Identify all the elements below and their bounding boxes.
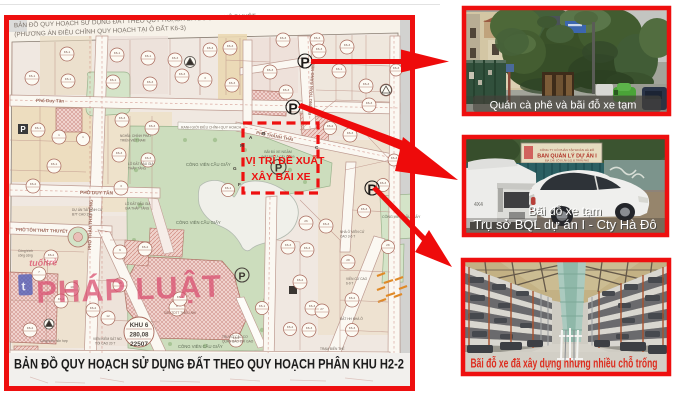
- svg-text:6-9 T: 6-9 T: [346, 282, 353, 286]
- svg-text:K6-3: K6-3: [391, 156, 398, 160]
- svg-text:12: 12: [106, 314, 110, 318]
- svg-text:BẢN ĐỒ QUY HOẠCH SỬ DỤNG ĐẤT T: BẢN ĐỒ QUY HOẠCH SỬ DỤNG ĐẤT THEO QUY HO…: [14, 355, 404, 372]
- svg-text:7: 7: [38, 270, 40, 274]
- svg-text:K6-3: K6-3: [116, 151, 123, 155]
- svg-text:280,08: 280,08: [130, 332, 149, 339]
- svg-text:XÂY BÃI XE: XÂY BÃI XE: [251, 170, 310, 183]
- svg-text:K6-3: K6-3: [149, 124, 156, 128]
- svg-text:28: 28: [346, 258, 350, 262]
- svg-text:K6-3: K6-3: [347, 131, 354, 135]
- svg-text:K6-3: K6-3: [145, 156, 152, 160]
- svg-text:M: M: [240, 143, 244, 148]
- svg-text:G: G: [233, 166, 237, 171]
- svg-text:P: P: [20, 125, 26, 134]
- svg-text:P: P: [288, 100, 297, 116]
- svg-text:K6-1: K6-1: [336, 67, 343, 71]
- svg-text:K6-1: K6-1: [35, 126, 42, 130]
- svg-text:DỰ ÁN TÁI ĐỊNH CƯ: DỰ ÁN TÁI ĐỊNH CƯ: [72, 208, 103, 212]
- svg-text:K6-1: K6-1: [64, 50, 71, 54]
- svg-text:TRIỂN VIỆT NAM: TRIỂN VIỆT NAM: [120, 138, 146, 143]
- svg-text:K6-3: K6-3: [380, 181, 387, 185]
- svg-text:6: 6: [119, 248, 121, 252]
- svg-text:K6-3: K6-3: [285, 243, 292, 247]
- svg-text:TRẠM BIẾN THẾ: TRẠM BIẾN THẾ: [320, 346, 345, 351]
- svg-text:ĐẤT HH NHÀ Ở: ĐẤT HH NHÀ Ở: [340, 316, 363, 321]
- svg-text:K6-2: K6-2: [349, 296, 356, 300]
- svg-text:Quán cà phê và bãi đỗ xe tạm: Quán cà phê và bãi đỗ xe tạm: [490, 99, 637, 112]
- svg-text:K6-3: K6-3: [267, 68, 274, 72]
- svg-text:LÔ ĐẤT ĐẤU GIÁ: LÔ ĐẤT ĐẤU GIÁ: [128, 161, 154, 166]
- svg-text:SÂN TDTT THIẾU NHI: SÂN TDTT THIẾU NHI: [164, 310, 196, 315]
- svg-text:K6-2: K6-2: [297, 278, 304, 282]
- svg-text:K6-3: K6-3: [119, 116, 126, 120]
- svg-text:3: 3: [204, 76, 206, 80]
- svg-text:K6-3: K6-3: [227, 44, 234, 48]
- svg-text:1: 1: [82, 135, 84, 139]
- svg-text:K6-2: K6-2: [287, 325, 294, 329]
- svg-text:K6-3: K6-3: [366, 101, 373, 105]
- svg-text:K6-1: K6-1: [110, 78, 117, 82]
- svg-text:22507: 22507: [130, 341, 148, 348]
- svg-text:K6-3: K6-3: [349, 326, 356, 330]
- svg-text:NHÀ Ở VIÊN CỨ: NHÀ Ở VIÊN CỨ: [340, 229, 365, 234]
- svg-text:K6-1: K6-1: [114, 51, 121, 55]
- svg-text:K6-1: K6-1: [145, 54, 152, 58]
- svg-text:K6-1: K6-1: [225, 186, 232, 190]
- svg-text:K6-1: K6-1: [51, 162, 58, 166]
- svg-text:K6-1: K6-1: [259, 304, 266, 308]
- svg-text:K6-3: K6-3: [344, 43, 351, 47]
- svg-text:26: 26: [304, 219, 308, 223]
- svg-text:K6-3: K6-3: [314, 36, 321, 40]
- svg-text:P: P: [238, 271, 245, 283]
- svg-text:Bãi đỗ xe tạm: Bãi đỗ xe tạm: [528, 203, 601, 218]
- svg-text:B7T CAO 15T: B7T CAO 15T: [72, 213, 92, 217]
- svg-text:t: t: [21, 279, 25, 293]
- svg-text:K6-3: K6-3: [316, 47, 323, 51]
- svg-text:CÔNG VIÊN CẦU GIẤY: CÔNG VIÊN CẦU GIẤY: [176, 220, 221, 225]
- svg-text:K6-3: K6-3: [323, 222, 330, 226]
- svg-text:K6-2: K6-2: [327, 124, 334, 128]
- svg-text:CAO 3-6 T: CAO 3-6 T: [340, 235, 355, 239]
- svg-text:K6-3: K6-3: [393, 66, 400, 70]
- svg-text:K6-2: K6-2: [142, 245, 149, 249]
- svg-text:KHU 6: KHU 6: [130, 322, 149, 329]
- svg-text:BÃI Đỗ XE NGẦM: BÃI Đỗ XE NGẦM: [264, 149, 291, 154]
- svg-text:K6-3: K6-3: [283, 88, 290, 92]
- svg-text:TỐI CAO 20 T: TỐI CAO 20 T: [95, 341, 115, 346]
- svg-text:RANH GIỚI ĐIỀU CHỈNH QUY HOẠCH: RANH GIỚI ĐIỀU CHỈNH QUY HOẠCH: [181, 125, 242, 130]
- svg-text:K6-1: K6-1: [29, 74, 36, 78]
- svg-text:CÔNG TY CỔ PHẦN TẬP ĐOÀN HÀ ĐÔ: CÔNG TY CỔ PHẦN TẬP ĐOÀN HÀ ĐÔ: [540, 147, 595, 152]
- svg-text:K6-1: K6-1: [65, 77, 72, 81]
- svg-text:3: 3: [120, 184, 122, 188]
- svg-text:PHÁP LUẬT: PHÁP LUẬT: [36, 267, 223, 309]
- svg-text:VIỆN KIỂM SÁT ND: VIỆN KIỂM SÁT ND: [93, 336, 122, 341]
- svg-text:công cộng: công cộng: [18, 254, 33, 258]
- svg-text:K6-3: K6-3: [304, 246, 311, 250]
- svg-text:K6-3: K6-3: [207, 46, 214, 50]
- svg-text:Công trình hỗn hợp: Công trình hỗn hợp: [40, 338, 68, 343]
- svg-text:K6-3: K6-3: [172, 56, 179, 60]
- svg-text:K6-3: K6-3: [361, 207, 368, 211]
- svg-text:GIA THẤP TẦNG: GIA THẤP TẦNG: [125, 207, 150, 211]
- svg-text:27: 27: [320, 307, 324, 311]
- svg-text:VIỄN CƯ CAO: VIỄN CƯ CAO: [346, 276, 368, 281]
- svg-text:K6-3: K6-3: [280, 36, 287, 40]
- svg-text:NGHĨA: CHÍNH PHÁT: NGHĨA: CHÍNH PHÁT: [120, 133, 151, 138]
- svg-text:K6-2: K6-2: [30, 182, 37, 186]
- svg-text:K6-3: K6-3: [147, 80, 154, 84]
- svg-text:tuổitrẻ: tuổitrẻ: [29, 257, 57, 268]
- svg-text:CÔNG VIÊN CẦU GIẤY: CÔNG VIÊN CẦU GIẤY: [186, 162, 231, 167]
- svg-text:QUAN BÁO CHÍ GAO: QUAN BÁO CHÍ GAO: [222, 340, 254, 344]
- svg-text:LÔ ĐẤT ĐẤU GIÁ: LÔ ĐẤT ĐẤU GIÁ: [125, 201, 151, 206]
- svg-text:K6-3: K6-3: [309, 304, 316, 308]
- svg-text:THẤP TẦNG: THẤP TẦNG: [128, 167, 147, 171]
- svg-text:TRỤ SỞ CÁC CƠ: TRỤ SỞ CÁC CƠ: [222, 334, 248, 339]
- svg-text:K6-2: K6-2: [27, 326, 34, 330]
- svg-text:Trụ sở BQL dự án I - Cty Hà Đô: Trụ sở BQL dự án I - Cty Hà Đô: [473, 217, 656, 232]
- svg-text:Công trình: Công trình: [18, 249, 33, 253]
- svg-text:K6-3: K6-3: [229, 81, 236, 85]
- svg-text:K6-3: K6-3: [363, 82, 370, 86]
- svg-text:K6-3: K6-3: [306, 326, 313, 330]
- svg-text:K6-3: K6-3: [179, 72, 186, 76]
- svg-text:BAN QUẢN LÝ DỰ ÁN I: BAN QUẢN LÝ DỰ ÁN I: [537, 153, 597, 160]
- svg-text:F: F: [238, 182, 241, 187]
- svg-text:Phố Duy Tân: Phố Duy Tân: [36, 97, 64, 103]
- svg-text:P: P: [300, 54, 309, 70]
- svg-text:1: 1: [58, 133, 60, 137]
- svg-text:4X4: 4X4: [474, 202, 483, 208]
- svg-text:Bãi đỗ xe đã xây dựng nhưng nh: Bãi đỗ xe đã xây dựng nhưng nhiều chỗ tr…: [471, 356, 658, 371]
- svg-text:CÔNG VIÊN CẦU GIẤY: CÔNG VIÊN CẦU GIẤY: [178, 344, 223, 349]
- svg-text:VỊ TRÍ ĐỀ XUẤT: VỊ TRÍ ĐỀ XUẤT: [246, 154, 325, 167]
